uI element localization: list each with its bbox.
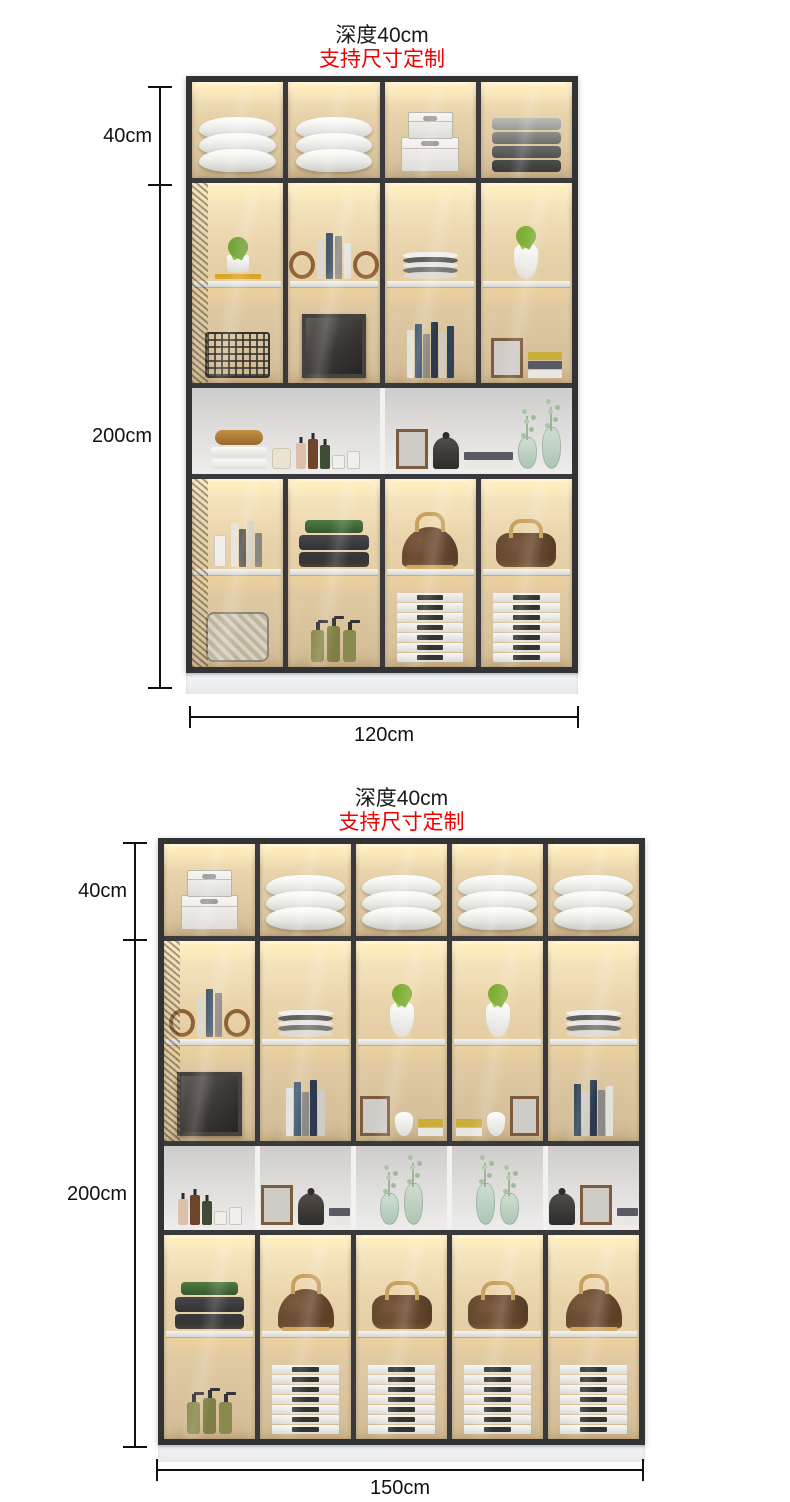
cabinet2-lg-cell2 [260, 1235, 351, 1439]
glass-shelf [454, 1331, 541, 1337]
gel-bottle [327, 626, 340, 662]
cell-items [292, 479, 375, 567]
white-book [560, 1385, 626, 1394]
figure1-dim-200cm: 200cm [72, 425, 152, 448]
pump-bottle [178, 1199, 188, 1225]
white-book [493, 653, 560, 662]
figure1-width-tick-left [189, 706, 191, 728]
towel-roll [215, 430, 263, 445]
cabinet2-open-bay1 [164, 1146, 255, 1230]
plate [403, 272, 458, 279]
small-picture-frame [510, 1096, 540, 1136]
plant-leaves [221, 237, 255, 257]
white-book [464, 1405, 530, 1414]
book-stack [329, 1207, 351, 1225]
pump-bottles [187, 1398, 232, 1434]
cell-items [456, 1235, 539, 1329]
glass-shelf [550, 1039, 637, 1045]
figure2-tick-top [123, 842, 147, 844]
cell-items [389, 183, 472, 279]
glass-vases [476, 1183, 519, 1225]
glass-shelf [483, 281, 570, 287]
book-stack [464, 451, 513, 469]
pump-bottle [320, 445, 330, 469]
white-book-stack [560, 1364, 626, 1434]
white-book [464, 1385, 530, 1394]
cell-items [552, 852, 635, 930]
book-row [231, 521, 262, 567]
blanket [492, 146, 560, 158]
cloche [433, 437, 459, 469]
cabinet1-open-bay1 [192, 388, 380, 474]
gray-blanket [299, 535, 369, 550]
figure2-title: 深度40cm 支持尺寸定制 [158, 787, 645, 835]
speedy-handbag [496, 533, 556, 567]
cloche [549, 1193, 575, 1225]
book [310, 1080, 317, 1136]
storage-boxes [177, 870, 242, 930]
vase-with-succulent [482, 984, 514, 1037]
green-blanket [181, 1282, 238, 1295]
cabinet1-ug-cell4 [481, 183, 572, 383]
cell-items [196, 289, 279, 378]
figure1-depth-label: 深度40cm [186, 24, 578, 48]
cell-items [456, 1047, 539, 1136]
plate [278, 1030, 333, 1037]
pump-bottle [296, 443, 306, 469]
white-book [560, 1415, 626, 1424]
pillow [199, 149, 276, 172]
white-book [493, 593, 560, 602]
cabinet1-open-bay2 [385, 388, 573, 474]
white-book [464, 1415, 530, 1424]
cell-items [196, 479, 279, 567]
cabinet1-plinth [186, 673, 578, 694]
folded-blankets [492, 116, 560, 172]
cabinet2-open-bay4 [452, 1146, 543, 1230]
book [456, 1119, 482, 1127]
cell-items [168, 852, 251, 930]
book [335, 236, 342, 279]
white-book [464, 1395, 530, 1404]
cell-items [485, 577, 568, 662]
towel [211, 447, 267, 457]
pillow [362, 907, 440, 930]
white-book-stack [493, 592, 560, 662]
small-picture-frame [360, 1096, 390, 1136]
cell-items [485, 479, 568, 567]
figure2-width-dim-line [157, 1469, 644, 1471]
small-picture-frame [261, 1185, 293, 1225]
cream-jar [332, 455, 345, 469]
cabinet2-ug-cell3 [356, 941, 447, 1141]
book-row [407, 322, 454, 378]
book [447, 326, 454, 378]
figure2-width-tick-right [642, 1459, 644, 1481]
toiletries-tray [296, 439, 360, 469]
white-book [493, 643, 560, 652]
book [423, 334, 430, 378]
cabinet2-top-cell3 [356, 844, 447, 936]
cell-items [456, 852, 539, 930]
figure2-dim-40cm: 40cm [55, 880, 127, 903]
cell-items [485, 289, 568, 378]
product-spec-page: { "page": {"background": "#ffffff", "typ… [0, 0, 790, 1502]
cabinet1-open-display-row [192, 388, 572, 474]
white-book [493, 623, 560, 632]
gray-blanket [175, 1314, 245, 1329]
figure2-dim-150cm: 150cm [310, 1477, 490, 1500]
towel-group [211, 430, 267, 469]
white-book [368, 1425, 434, 1434]
cream-jar [229, 1207, 242, 1225]
cell-items [292, 183, 375, 279]
cell-items [168, 1047, 251, 1136]
cell-items [196, 90, 279, 172]
cabinet1-lower-glass-row [192, 479, 572, 667]
cabinet1-lg-cell2 [288, 479, 379, 667]
cell-items [264, 1339, 347, 1434]
cabinet1-lg-cell3 [385, 479, 476, 667]
succulent [510, 226, 542, 246]
cell-items [168, 1235, 251, 1329]
white-book [368, 1385, 434, 1394]
white-book [397, 613, 464, 622]
white-book [397, 653, 464, 662]
figure1-dim-40cm: 40cm [80, 125, 152, 148]
book-row [286, 1080, 325, 1136]
white-book [464, 1425, 530, 1434]
book [329, 1217, 351, 1225]
glass-shelf [387, 569, 474, 575]
cloche [298, 1193, 324, 1225]
figure1-tick-top [148, 86, 172, 88]
white-book [397, 603, 464, 612]
green-blanket [305, 520, 362, 533]
white-book [493, 613, 560, 622]
book [528, 370, 561, 378]
glass-shelf [483, 569, 570, 575]
book-stack [418, 1118, 444, 1136]
figure1-custom-label: 支持尺寸定制 [186, 48, 578, 72]
round-bookend [224, 1009, 250, 1037]
figure1-tick-bottom [148, 687, 172, 689]
alma-handbag [278, 1289, 334, 1329]
cabinet2-ug-cell4 [452, 941, 543, 1141]
white-book [368, 1395, 434, 1404]
cream-jar [347, 451, 360, 469]
towel [211, 459, 267, 469]
white-book [272, 1425, 338, 1434]
glass-jar [272, 448, 291, 469]
figure2-width-tick-left [156, 1459, 158, 1481]
cell-items [485, 90, 568, 172]
cabinet2-open-bay2 [260, 1146, 351, 1230]
book [329, 1208, 351, 1216]
gel-bottle [187, 1402, 200, 1434]
glass-shelf [166, 1331, 253, 1337]
white-book [272, 1385, 338, 1394]
storage-boxes [398, 112, 463, 172]
white-book [397, 633, 464, 642]
toiletries-tray [178, 1195, 242, 1225]
books-with-bookends [169, 989, 250, 1037]
cell-items [168, 941, 251, 1037]
figure2-tick-bottom [123, 1446, 147, 1448]
white-vase [486, 1001, 510, 1037]
white-book [464, 1365, 530, 1374]
book [528, 361, 561, 369]
book [317, 239, 324, 279]
pillow-stack [362, 882, 440, 930]
white-book [272, 1415, 338, 1424]
book [326, 233, 333, 279]
book-row [574, 1080, 613, 1136]
pillow-stack [199, 124, 276, 172]
figure1-tick-mid [148, 184, 172, 186]
cabinet2-lg-cell1 [164, 1235, 255, 1439]
book [215, 993, 222, 1037]
cane-mesh-side-panel [192, 479, 208, 667]
storage-box [408, 112, 453, 139]
cabinet1-ug-cell2 [288, 183, 379, 383]
white-book [368, 1415, 434, 1424]
cell-items [552, 1339, 635, 1434]
pillow-stack [296, 124, 373, 172]
gel-bottle [343, 630, 356, 662]
cabinet2-top-row [164, 844, 639, 936]
book [582, 1092, 589, 1136]
cabinet1-lg-cell4 [481, 479, 572, 667]
cell-items [456, 1339, 539, 1434]
cabinet2-upper-glass-row [164, 941, 639, 1141]
succulent [482, 984, 514, 1004]
figure1-dim-120cm: 120cm [294, 724, 474, 747]
pillow [296, 149, 373, 172]
figure1-height-dim-line [159, 87, 161, 689]
storage-box [187, 870, 232, 897]
glass-shelf [290, 569, 377, 575]
book-stack [456, 1118, 482, 1136]
cell-items [485, 183, 568, 279]
cane-mesh-side-panel [164, 941, 180, 1141]
pillow-stack [458, 882, 536, 930]
folded-blankets [175, 1280, 245, 1329]
book [574, 1084, 581, 1136]
cell-items [292, 577, 375, 662]
speedy-handbag [372, 1295, 432, 1329]
pillow-stack [554, 882, 632, 930]
cabinet2-lg-cell3 [356, 1235, 447, 1439]
cell-items [360, 1339, 443, 1434]
book [528, 352, 561, 360]
gel-bottle [219, 1402, 232, 1434]
small-picture-frame [580, 1185, 612, 1225]
gray-blanket [299, 552, 369, 567]
pillow [458, 907, 536, 930]
cabinet2-top-cell5 [548, 844, 639, 936]
book [415, 324, 422, 378]
white-book-stack [397, 592, 464, 662]
pump-bottle [190, 1195, 200, 1225]
white-book [272, 1395, 338, 1404]
book [294, 1082, 301, 1136]
white-vase [390, 1001, 414, 1037]
book-stack [617, 1207, 639, 1225]
cell-items [264, 852, 347, 930]
glass-shelf [387, 281, 474, 287]
white-book [368, 1375, 434, 1384]
blanket [492, 118, 560, 130]
white-vase [487, 1112, 505, 1136]
glass-vase [404, 1183, 423, 1225]
cabinet2-open-bay3 [356, 1146, 447, 1230]
white-book [272, 1405, 338, 1414]
book [247, 521, 254, 567]
figure1-title: 深度40cm 支持尺寸定制 [186, 24, 578, 72]
white-book [560, 1405, 626, 1414]
white-book [397, 623, 464, 632]
white-book [397, 593, 464, 602]
cell-items [196, 577, 279, 662]
cabinet2-lower-glass-row [164, 1235, 639, 1439]
cell-items [389, 479, 472, 567]
large-picture-frame [177, 1072, 241, 1136]
glass-shelf [358, 1039, 445, 1045]
pillow [554, 907, 632, 930]
cell-items [196, 183, 279, 279]
woven-basket [206, 612, 268, 662]
white-book [560, 1375, 626, 1384]
storage-box [181, 895, 239, 930]
book [231, 523, 238, 567]
book [598, 1090, 605, 1136]
large-picture-frame [302, 314, 367, 378]
white-vase [395, 1112, 413, 1136]
glass-vase [542, 427, 561, 469]
succulent [386, 984, 418, 1004]
glass-shelf [454, 1039, 541, 1045]
figure2-depth-label: 深度40cm [158, 787, 645, 811]
cell-items [292, 289, 375, 378]
cabinet1-top-cell3 [385, 82, 476, 178]
round-bookend [289, 251, 315, 279]
book [255, 533, 262, 567]
book [617, 1208, 639, 1216]
cell-items [389, 90, 472, 172]
storage-box [401, 137, 459, 172]
cell-items [292, 90, 375, 172]
small-picture-frame [396, 429, 428, 469]
gray-blanket [175, 1297, 245, 1312]
book-stack [528, 351, 561, 378]
white-book [272, 1365, 338, 1374]
book [206, 989, 213, 1037]
round-bookend [353, 251, 379, 279]
cabinet1-ug-cell3 [385, 183, 476, 383]
cell-items [168, 1339, 251, 1434]
glass-vase [380, 1193, 399, 1225]
cell-items [360, 941, 443, 1037]
book [439, 332, 446, 378]
glass-shelf [550, 1331, 637, 1337]
book [197, 995, 204, 1037]
cell-items [360, 1047, 443, 1136]
glass-vases [518, 427, 561, 469]
alma-handbag [566, 1289, 622, 1329]
cell-items [264, 1235, 347, 1329]
flat-book [215, 274, 261, 279]
cabinet2-open-bay5 [548, 1146, 639, 1230]
white-book-stack [272, 1364, 338, 1434]
book [239, 529, 246, 567]
book [464, 452, 513, 460]
pump-bottle [308, 439, 318, 469]
book [286, 1088, 293, 1136]
cane-mesh-side-panel [192, 183, 208, 383]
book [617, 1217, 639, 1225]
white-bookend [214, 535, 226, 567]
book [302, 1092, 309, 1136]
cabinet1-top-cell4 [481, 82, 572, 178]
books-with-bookends [289, 233, 379, 279]
wire-basket [205, 332, 271, 378]
white-book [493, 603, 560, 612]
pillow [266, 907, 344, 930]
book [418, 1119, 444, 1127]
cabinet2-lg-cell4 [452, 1235, 543, 1439]
book [431, 322, 438, 378]
plate-stack [566, 1012, 621, 1037]
glass-vases [380, 1183, 423, 1225]
figure2-custom-label: 支持尺寸定制 [158, 811, 645, 835]
blanket [492, 160, 560, 172]
book [418, 1128, 444, 1136]
cabinet1-upper-glass-row [192, 183, 572, 383]
white-book [464, 1375, 530, 1384]
small-picture-frame [491, 338, 523, 378]
white-book [368, 1365, 434, 1374]
book [590, 1080, 597, 1136]
figure2-height-dim-line [134, 843, 136, 1448]
cream-jar [214, 1211, 227, 1225]
potted-plant [215, 237, 261, 279]
vase-with-succulent [386, 984, 418, 1037]
cell-items [552, 1235, 635, 1329]
figure1-width-tick-right [577, 706, 579, 728]
flower-vase [487, 1115, 505, 1136]
cabinet1-ug-cell1 [192, 183, 283, 383]
folded-blankets [299, 518, 369, 567]
white-book [560, 1425, 626, 1434]
figure1-width-dim-line [190, 716, 578, 718]
cabinet2-top-cell4 [452, 844, 543, 936]
white-book-stack [368, 1364, 434, 1434]
cabinet2-ug-cell5 [548, 941, 639, 1141]
cabinet2-top-cell1 [164, 844, 255, 936]
display-cabinet-120cm [186, 76, 578, 673]
cabinet2-ug-cell2 [260, 941, 351, 1141]
white-book [560, 1365, 626, 1374]
glass-vase [500, 1193, 519, 1225]
gel-bottle [203, 1398, 216, 1434]
cabinet1-top-row [192, 82, 572, 178]
speedy-handbag [468, 1295, 528, 1329]
white-book [397, 643, 464, 652]
flower-vase [395, 1115, 413, 1136]
plate [566, 1030, 621, 1037]
cabinet2-ug-cell1 [164, 941, 255, 1141]
